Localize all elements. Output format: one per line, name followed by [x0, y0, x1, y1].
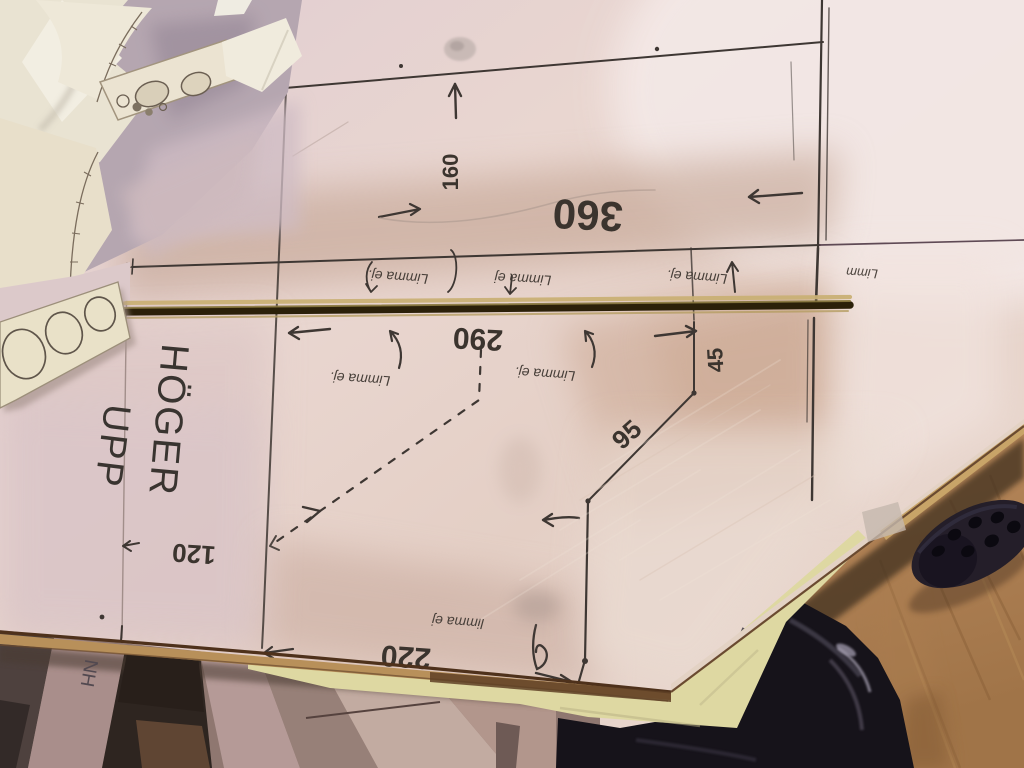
svg-text:120: 120	[171, 538, 216, 571]
svg-text:360: 360	[552, 190, 624, 241]
svg-text:Limm: Limm	[845, 264, 878, 281]
svg-text:Limma ej: Limma ej	[493, 270, 551, 289]
svg-text:290: 290	[452, 321, 504, 357]
svg-text:45: 45	[702, 347, 728, 373]
svg-text:160: 160	[438, 154, 463, 191]
